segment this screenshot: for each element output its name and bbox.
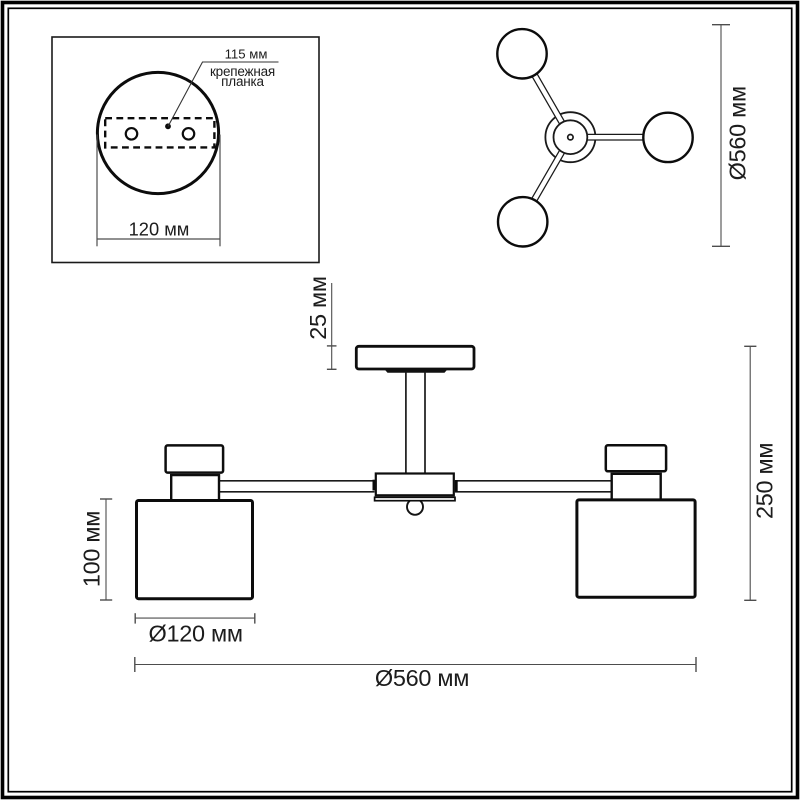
svg-text:Ø560 мм: Ø560 мм [725, 86, 751, 180]
svg-text:120 мм: 120 мм [129, 219, 190, 240]
svg-text:25 мм: 25 мм [305, 276, 331, 339]
svg-text:100 мм: 100 мм [79, 511, 105, 587]
svg-text:Ø560 мм: Ø560 мм [375, 665, 469, 691]
svg-text:250 мм: 250 мм [752, 443, 778, 519]
svg-text:Ø120 мм: Ø120 мм [148, 621, 242, 647]
svg-text:115 мм: 115 мм [225, 47, 268, 62]
svg-text:планка: планка [221, 74, 264, 89]
